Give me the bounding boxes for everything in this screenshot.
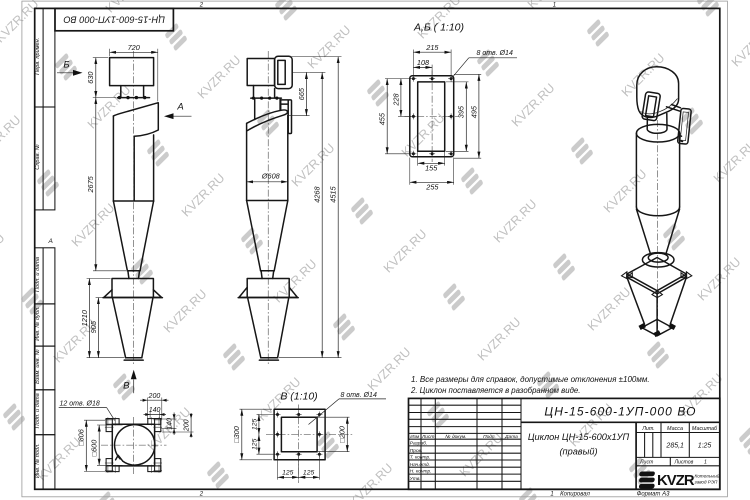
svg-text:А,Б ( 1:10): А,Б ( 1:10) [413, 22, 464, 34]
svg-text:1: 1 [550, 491, 553, 497]
svg-text:905: 905 [89, 320, 98, 333]
svg-text:1:25: 1:25 [698, 443, 712, 450]
svg-text:285,1: 285,1 [665, 443, 684, 450]
svg-text:Котельный: Котельный [695, 473, 720, 479]
svg-text:Б: Б [63, 59, 69, 70]
svg-text:2: 2 [199, 492, 204, 498]
svg-text:215: 215 [425, 43, 439, 52]
svg-text:Инв. № дубл.: Инв. № дубл. [35, 306, 41, 340]
svg-text:255: 255 [425, 182, 439, 191]
svg-text:□600: □600 [90, 440, 99, 457]
svg-text:KVZR: KVZR [657, 473, 695, 489]
svg-text:140: 140 [149, 407, 161, 414]
svg-text:Перв. примен.: Перв. примен. [35, 38, 41, 75]
svg-text:2675: 2675 [86, 175, 95, 193]
svg-text:125: 125 [251, 438, 258, 450]
svg-text:108: 108 [417, 58, 430, 67]
svg-text:720: 720 [128, 43, 140, 52]
svg-text:665: 665 [297, 87, 306, 100]
svg-text:4515: 4515 [329, 186, 338, 203]
svg-text:Пров.: Пров. [410, 448, 423, 454]
svg-text:495: 495 [469, 105, 478, 118]
svg-text:Лист: Лист [639, 460, 654, 466]
svg-text:Подп.: Подп. [483, 434, 496, 440]
svg-text:200: 200 [184, 419, 191, 432]
svg-text:Формат А3: Формат А3 [637, 491, 670, 497]
svg-text:200: 200 [148, 393, 161, 400]
svg-text:□300: □300 [232, 426, 241, 443]
svg-text:Лист: Лист [421, 434, 434, 440]
svg-text:1210: 1210 [80, 310, 89, 326]
svg-text:2. Циклон поставляется в р: 2. Циклон поставляется в разобранном вид… [410, 386, 580, 395]
svg-text:№ докум.: № докум. [445, 434, 466, 440]
svg-text:Разраб.: Разраб. [410, 441, 427, 447]
svg-text:455: 455 [378, 112, 387, 125]
svg-text:395: 395 [457, 105, 466, 118]
svg-text:1. Все размеры для справок: 1. Все размеры для справок, допустимые о… [411, 375, 650, 384]
svg-text:1: 1 [704, 460, 707, 466]
svg-text:Инв. № подл.: Инв. № подл. [35, 443, 41, 478]
svg-text:Справ. №: Справ. № [35, 144, 41, 169]
svg-text:Масштаб: Масштаб [692, 426, 718, 432]
svg-text:4268: 4268 [313, 186, 322, 203]
svg-text:А: А [176, 102, 183, 113]
svg-text:2: 2 [199, 2, 204, 8]
svg-text:12 отв. Ø18: 12 отв. Ø18 [60, 400, 100, 407]
svg-text:ЦН-15-600-1УП-000 ВО: ЦН-15-600-1УП-000 ВО [544, 405, 696, 419]
svg-text:Листов: Листов [674, 460, 694, 466]
svg-text:155: 155 [425, 163, 438, 172]
svg-text:228: 228 [391, 92, 400, 106]
svg-text:Дата: Дата [504, 434, 518, 440]
svg-text:Ø608: Ø608 [261, 172, 281, 181]
svg-text:□806: □806 [77, 428, 86, 446]
svg-text:1: 1 [553, 2, 556, 8]
svg-text:А: А [48, 238, 53, 245]
svg-text:125: 125 [303, 470, 315, 477]
svg-text:Лит.: Лит. [641, 426, 655, 432]
svg-text:Взам. инв. №: Взам. инв. № [35, 349, 41, 384]
svg-text:Подп. и дата: Подп. и дата [35, 257, 41, 292]
svg-text:125: 125 [251, 419, 258, 431]
svg-text:Подп. и дата: Подп. и дата [35, 393, 41, 428]
svg-text:завод РЭП: завод РЭП [694, 480, 719, 485]
svg-text:Н. контр.: Н. контр. [410, 469, 432, 475]
svg-text:□200: □200 [338, 426, 347, 443]
svg-text:125: 125 [282, 470, 294, 477]
svg-text:В: В [123, 381, 130, 392]
svg-text:Утв.: Утв. [410, 476, 421, 482]
svg-text:Нач.отд.: Нач.отд. [410, 462, 430, 468]
svg-text:Масса: Масса [667, 426, 683, 432]
svg-text:ЦН-15-600-1УП-000 ВО: ЦН-15-600-1УП-000 ВО [63, 14, 165, 24]
svg-text:8 отв. Ø14: 8 отв. Ø14 [477, 50, 513, 57]
svg-text:630: 630 [86, 72, 95, 84]
svg-text:Изм: Изм [410, 434, 420, 440]
svg-text:В (1:10): В (1:10) [280, 391, 317, 403]
svg-text:Циклон ЦН-15-600х1УП: Циклон ЦН-15-600х1УП [528, 432, 630, 442]
svg-text:140: 140 [167, 418, 174, 430]
svg-text:(правый): (правый) [559, 447, 597, 457]
svg-text:8 отв. Ø14: 8 отв. Ø14 [341, 392, 377, 399]
svg-text:Т. контр.: Т. контр. [410, 455, 431, 461]
svg-text:Копировал: Копировал [560, 491, 590, 497]
